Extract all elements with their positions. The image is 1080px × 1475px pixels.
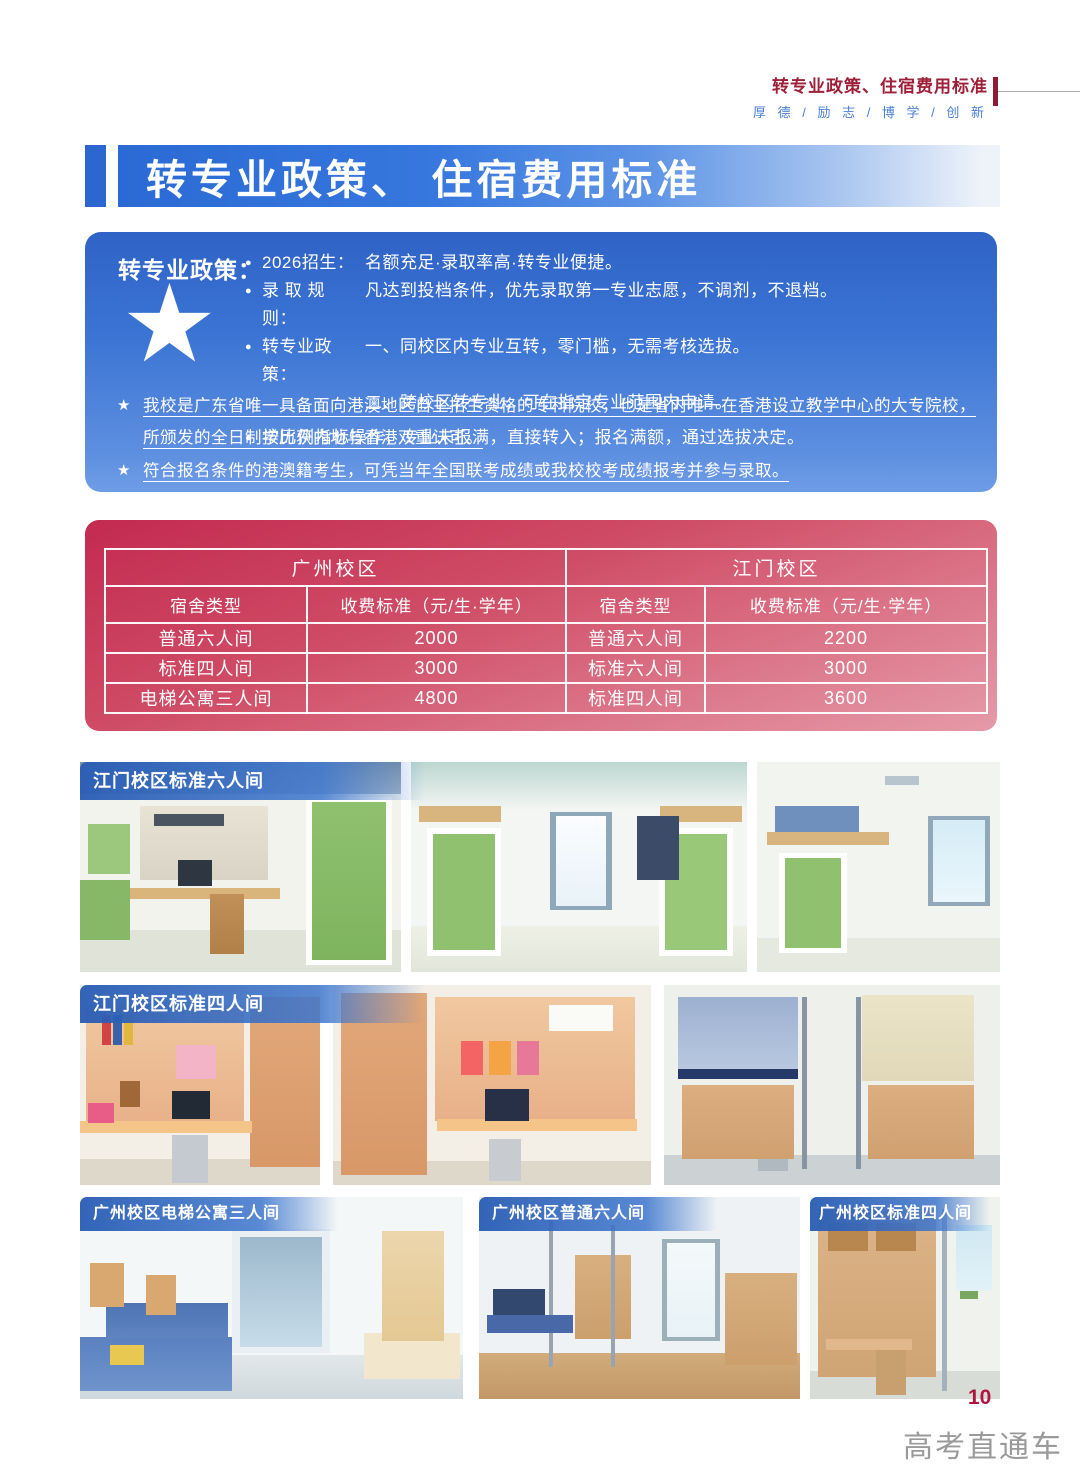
room-type: 电梯公寓三人间 — [105, 683, 307, 713]
policy-notes: ★ 我校是广东省唯一具备面向港澳地区自主招生资格的专科院校，也是省内唯一在香港设… — [117, 390, 979, 487]
fee-panel: 广州校区 江门校区 宿舍类型 收费标准（元/生·学年） 宿舍类型 收费标准（元/… — [85, 520, 997, 731]
room-type: 标准四人间 — [105, 653, 307, 683]
photo-label-guangzhou-std6: 广州校区普通六人间 — [479, 1197, 717, 1231]
photo-row-guangzhou: 广州校区电梯公寓三人间 广州校区普通六人间 广州校区标准四人间 — [80, 1197, 1000, 1399]
col-header-type-jm: 宿舍类型 — [566, 586, 705, 623]
policy-box: 转专业政策： ★ ● 2026招生： 名额充足·录取率高·转专业便捷。 ● 录 … — [85, 232, 997, 492]
header-rule — [998, 91, 1080, 92]
photo-row-jiangmen-std6: 江门校区标准六人间 — [80, 762, 1000, 972]
bullet-item: ● 转专业政策： 一、同校区内专业互转，零门槛，无需考核选拔。 — [245, 333, 983, 389]
room-fee: 3000 — [705, 653, 987, 683]
note-item: ★ 我校是广东省唯一具备面向港澳地区自主招生资格的专科院校，也是省内唯一在香港设… — [117, 390, 979, 454]
room-type: 标准四人间 — [566, 683, 705, 713]
note-text: 我校是广东省唯一具备面向港澳地区自主招生资格的专科院校，也是省内唯一在香港设立教… — [143, 390, 979, 454]
room-fee: 2200 — [705, 623, 987, 653]
col-header-type-gz: 宿舍类型 — [105, 586, 307, 623]
bullet-text: 凡达到投档条件，优先录取第一专业志愿，不调剂，不退档。 — [365, 277, 983, 333]
bullet-item: ● 录 取 规 则： 凡达到投档条件，优先录取第一专业志愿，不调剂，不退档。 — [245, 277, 983, 333]
dorm-photo-jiangmen-std4-loft-beds — [664, 985, 1000, 1185]
bullet-head: 转专业政策： — [262, 333, 365, 389]
note-text: 符合报名条件的港澳籍考生，可凭当年全国联考成绩或我校校考成绩报考并参与录取。 — [143, 455, 979, 487]
star-marker-icon: ★ — [117, 455, 143, 487]
bullet-dot-icon: ● — [245, 249, 262, 277]
photo-label-jiangmen-std6: 江门校区标准六人间 — [80, 762, 425, 800]
bullet-item: ● 2026招生： 名额充足·录取率高·转专业便捷。 — [245, 249, 983, 277]
photo-label-text: 广州校区电梯公寓三人间 — [93, 1205, 280, 1222]
photo-label-text: 广州校区标准四人间 — [819, 1205, 972, 1222]
col-header-fee-gz: 收费标准（元/生·学年） — [307, 586, 566, 623]
dorm-photo-guangzhou-std6: 广州校区普通六人间 — [479, 1197, 800, 1399]
doc-header-title: 转专业政策、住宿费用标准 — [753, 72, 988, 97]
dorm-photo-jiangmen-std6-corridor — [411, 762, 747, 972]
dorm-photo-jiangmen-std6-window — [757, 762, 1000, 972]
note-item: ★ 符合报名条件的港澳籍考生，可凭当年全国联考成绩或我校校考成绩报考并参与录取。 — [117, 455, 979, 487]
bullet-head: 2026招生： — [262, 249, 365, 277]
bullet-dot-icon: ● — [245, 333, 262, 389]
page-root: 转专业政策、住宿费用标准 厚 德 / 励 志 / 博 学 / 创 新 转专业政策… — [0, 0, 1080, 1475]
bullet-text: 一、同校区内专业互转，零门槛，无需考核选拔。 — [365, 333, 983, 389]
doc-header-slogan: 厚 德 / 励 志 / 博 学 / 创 新 — [753, 102, 988, 121]
dorm-photo-guangzhou-apartment3: 广州校区电梯公寓三人间 — [80, 1197, 463, 1399]
star-icon: ★ — [121, 270, 218, 378]
bullet-head: 录 取 规 则： — [262, 277, 365, 333]
dorm-photo-guangzhou-std4: 广州校区标准四人间 — [810, 1197, 1000, 1399]
campus-header-guangzhou: 广州校区 — [105, 549, 566, 586]
room-fee: 3000 — [307, 653, 566, 683]
title-accent-bar — [85, 145, 106, 207]
photo-label-guangzhou-std4: 广州校区标准四人间 — [810, 1197, 990, 1231]
room-type: 标准六人间 — [566, 653, 705, 683]
title-banner: 转专业政策、 住宿费用标准 — [118, 145, 1000, 207]
col-header-fee-jm: 收费标准（元/生·学年） — [705, 586, 987, 623]
photo-label-guangzhou-apartment3: 广州校区电梯公寓三人间 — [80, 1197, 338, 1231]
room-fee: 2000 — [307, 623, 566, 653]
room-fee: 4800 — [307, 683, 566, 713]
room-fee: 3600 — [705, 683, 987, 713]
photo-label-jiangmen-std4: 江门校区标准四人间 — [80, 985, 425, 1023]
fee-table: 广州校区 江门校区 宿舍类型 收费标准（元/生·学年） 宿舍类型 收费标准（元/… — [104, 548, 988, 714]
table-row: 普通六人间 2000 普通六人间 2200 — [105, 623, 987, 653]
photo-label-text: 广州校区普通六人间 — [492, 1205, 645, 1222]
table-row: 电梯公寓三人间 4800 标准四人间 3600 — [105, 683, 987, 713]
room-type: 普通六人间 — [105, 623, 307, 653]
photo-label-text: 江门校区标准六人间 — [93, 771, 264, 791]
bullet-dot-icon: ● — [245, 277, 262, 333]
table-row: 标准四人间 3000 标准六人间 3000 — [105, 653, 987, 683]
watermark: 高考直通车 — [903, 1422, 1063, 1466]
page-title: 转专业政策、 住宿费用标准 — [118, 146, 701, 206]
photo-row-jiangmen-std4: 江门校区标准四人间 — [80, 985, 1000, 1185]
bullet-text: 名额充足·录取率高·转专业便捷。 — [365, 249, 983, 277]
star-marker-icon: ★ — [117, 390, 143, 454]
campus-header-jiangmen: 江门校区 — [566, 549, 987, 586]
room-type: 普通六人间 — [566, 623, 705, 653]
page-number: 10 — [968, 1386, 991, 1410]
photo-label-text: 江门校区标准四人间 — [93, 994, 264, 1014]
doc-header: 转专业政策、住宿费用标准 厚 德 / 励 志 / 博 学 / 创 新 — [753, 72, 988, 121]
